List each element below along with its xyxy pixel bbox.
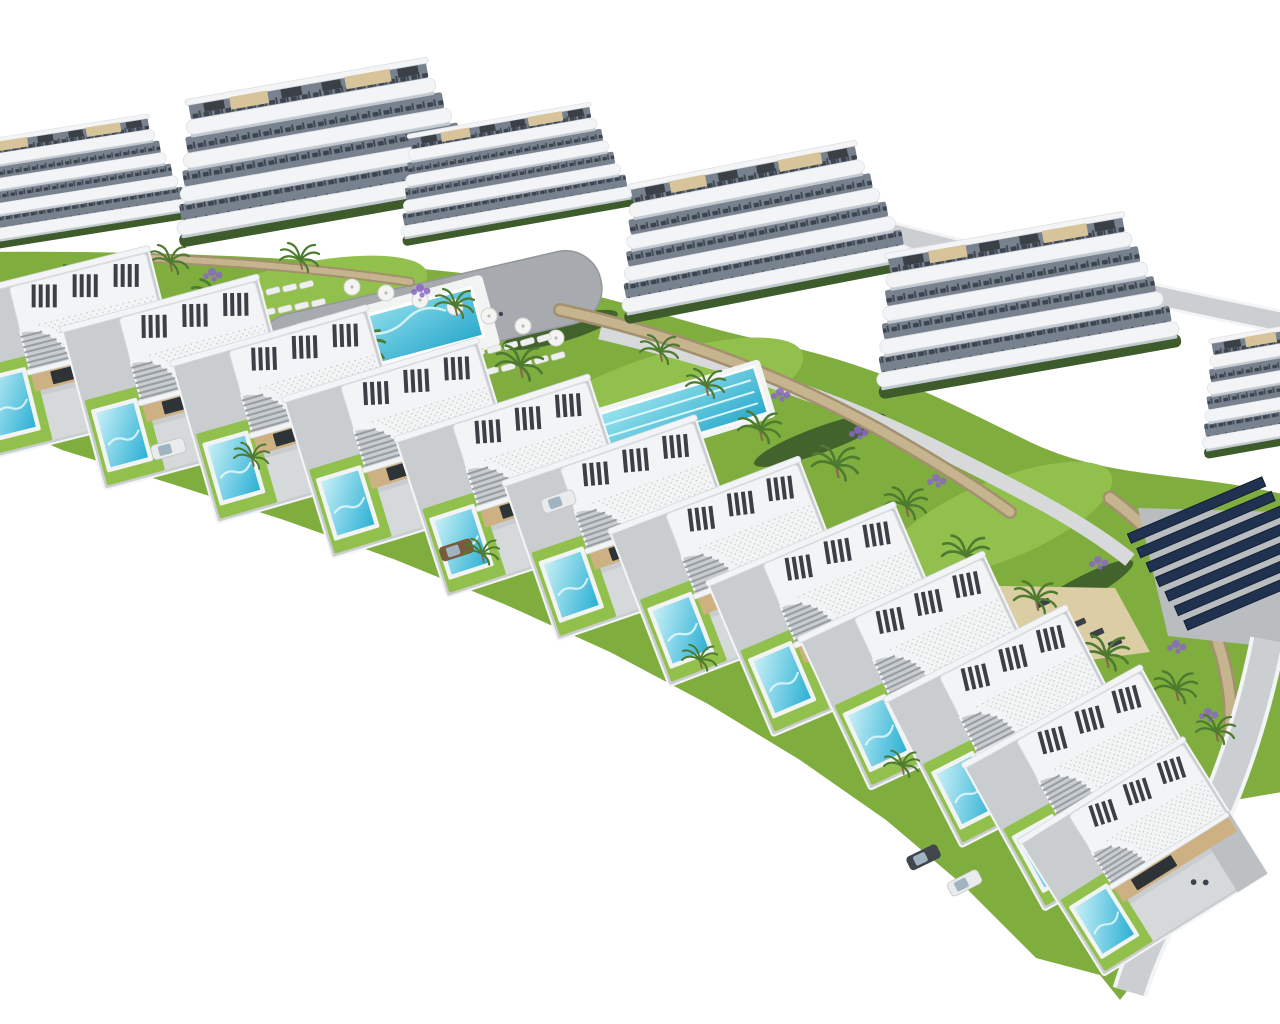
render-svg: Aerial 3D architectural render of a hill… <box>0 0 1280 1024</box>
aerial-render: Aerial 3D architectural render of a hill… <box>0 0 1280 1024</box>
